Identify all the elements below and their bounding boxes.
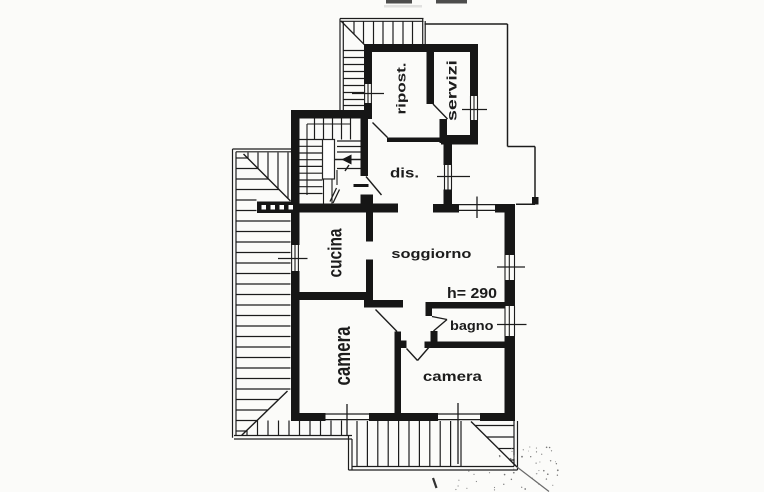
svg-text:camera: camera (330, 326, 355, 386)
svg-text:cucina: cucina (326, 228, 347, 277)
svg-text:bagno: bagno (450, 318, 494, 333)
svg-text:dis.: dis. (390, 165, 419, 180)
svg-text:h= 290: h= 290 (447, 285, 497, 302)
svg-text:servizi: servizi (445, 60, 460, 121)
svg-text:ripost.: ripost. (395, 63, 409, 115)
svg-text:camera: camera (423, 369, 483, 384)
svg-text:soggiorno: soggiorno (391, 247, 471, 261)
